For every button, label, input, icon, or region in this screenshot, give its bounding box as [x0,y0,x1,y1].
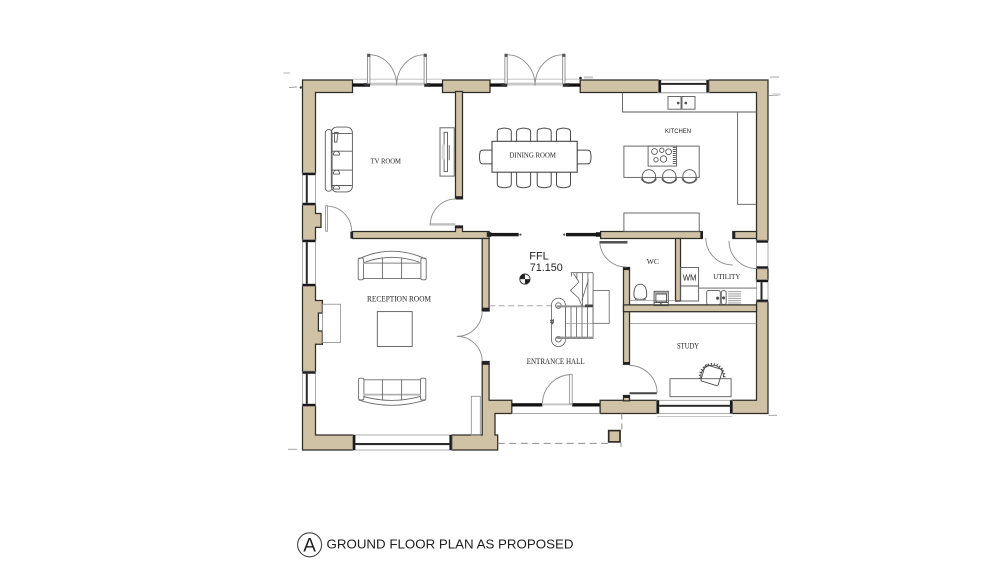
svg-text:41: 41 [550,319,555,324]
svg-text:RECEPTION ROOM: RECEPTION ROOM [367,294,431,303]
svg-text:KITCHEN: KITCHEN [665,128,691,135]
svg-text:A: A [303,536,316,557]
svg-text:DINING ROOM: DINING ROOM [510,151,557,160]
svg-text:TV ROOM: TV ROOM [371,157,402,166]
svg-text:71.150: 71.150 [530,262,563,274]
svg-text:WC: WC [647,257,659,266]
svg-text:WM: WM [683,274,697,283]
svg-text:STUDY: STUDY [677,341,699,350]
svg-text:UTILITY: UTILITY [713,272,740,281]
svg-text:FFL: FFL [529,251,549,263]
svg-text:GROUND FLOOR PLAN AS PROPOSED: GROUND FLOOR PLAN AS PROPOSED [327,536,574,551]
svg-text:ENTRANCE HALL: ENTRANCE HALL [527,357,585,366]
